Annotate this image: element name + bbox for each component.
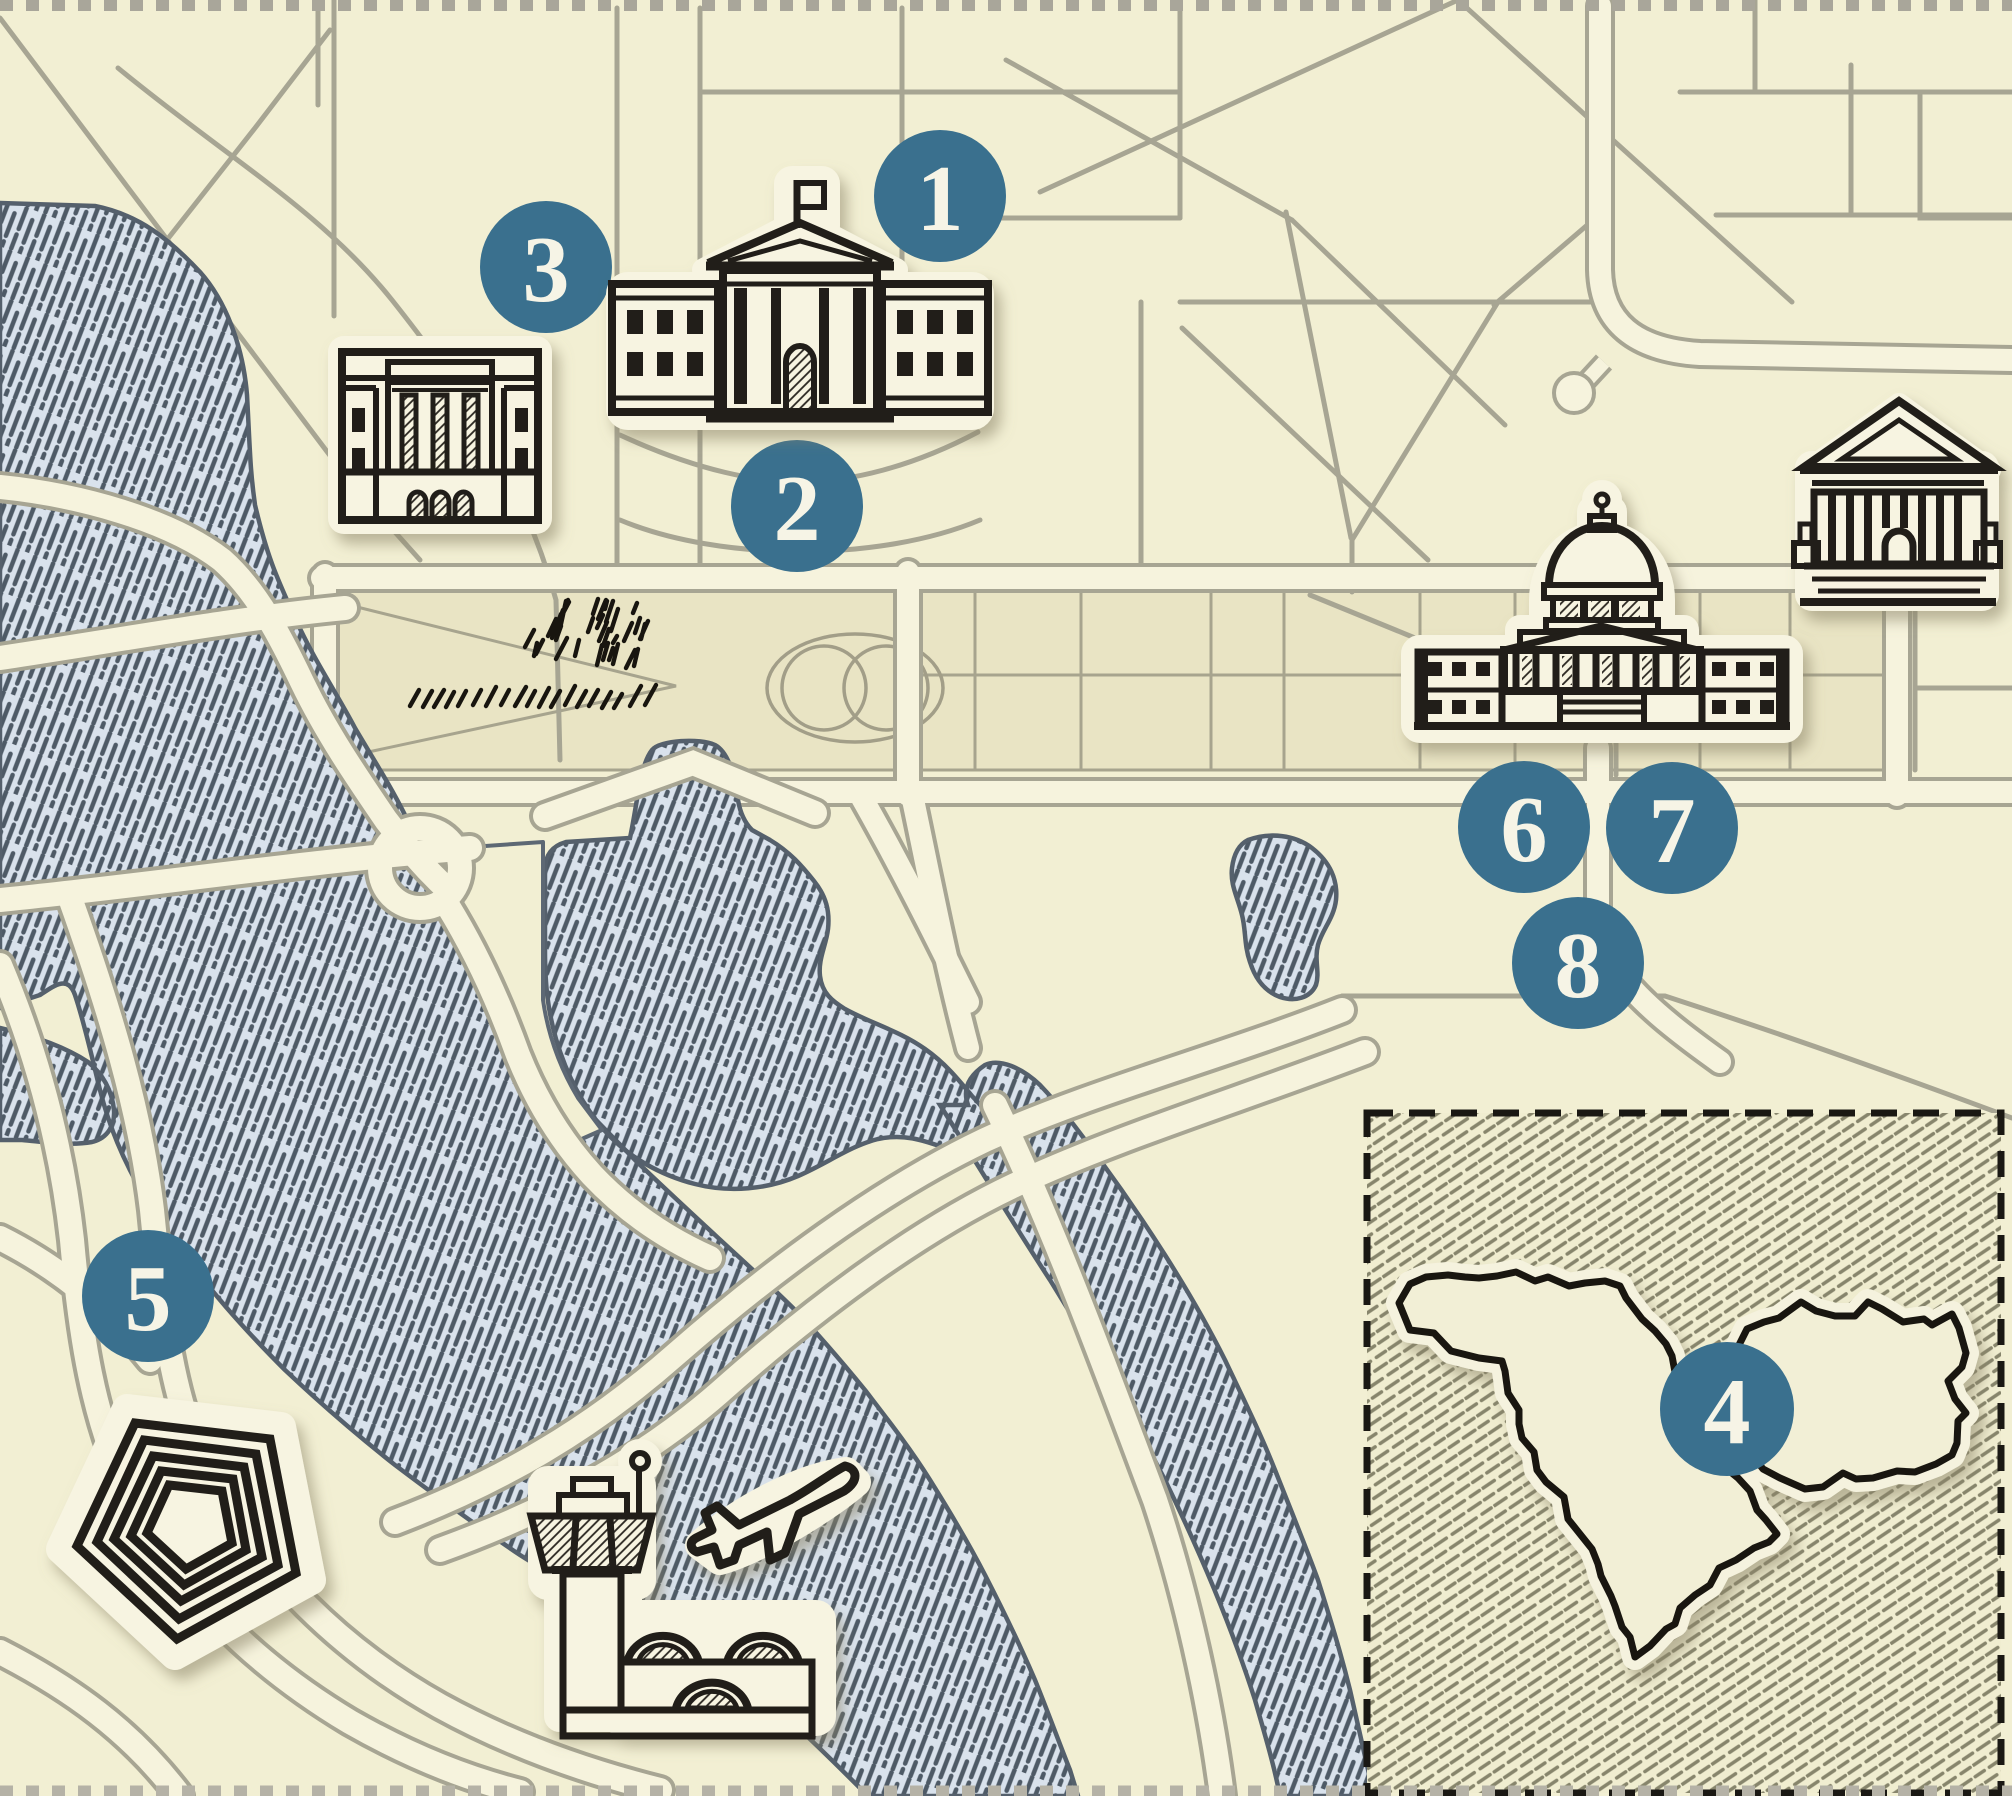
svg-text:8: 8 [1555, 914, 1602, 1018]
svg-text:6: 6 [1501, 778, 1548, 882]
svg-text:1: 1 [917, 147, 964, 251]
svg-text:4: 4 [1704, 1360, 1751, 1464]
svg-text:5: 5 [125, 1247, 172, 1351]
svg-text:3: 3 [523, 218, 570, 322]
svg-text:2: 2 [774, 457, 821, 561]
svg-text:7: 7 [1649, 779, 1696, 883]
